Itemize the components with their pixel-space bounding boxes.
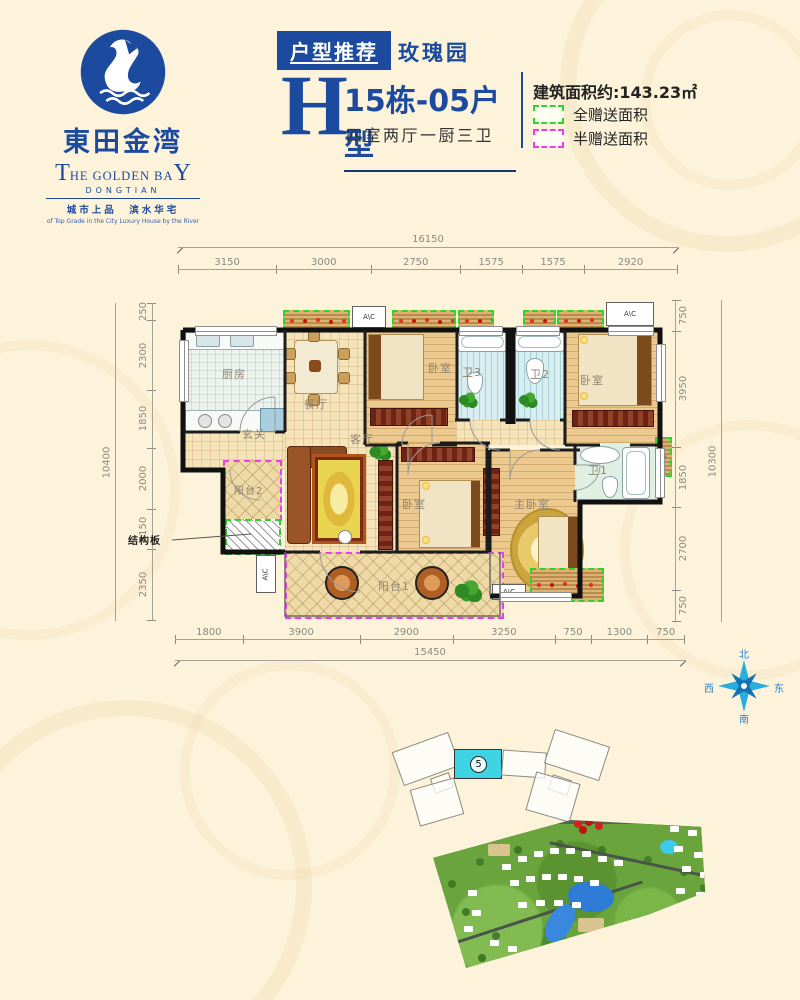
masterplan-buildings [502, 864, 511, 870]
balcony2-label: 阳台2 [234, 482, 263, 497]
brand-name-english: THE GOLDEN BAY [38, 161, 208, 185]
header-divider [521, 72, 523, 148]
brand-tagline-cn: 城市上品 滨水华宅 [38, 202, 208, 216]
bath2-label: 卫2 [530, 366, 550, 382]
compass: 北 南 西 东 [704, 646, 784, 726]
compass-north: 北 [739, 646, 749, 661]
masterplan-pond [660, 840, 678, 854]
legend-half-gift-swatch [533, 129, 564, 148]
entry-label: 玄关 [242, 426, 266, 442]
unit-subtitle: 四室两厅一厨三卫 [346, 122, 494, 146]
garden-name: 玫瑰园 [398, 37, 470, 67]
building-outline [525, 771, 580, 822]
bath3-label: 卫3 [462, 364, 482, 380]
masterplan-map [428, 820, 798, 992]
brand-subname: DONGTIAN [38, 186, 208, 195]
brand-en-final: Y [174, 160, 191, 186]
bedroom-c-label: 卧室 [402, 496, 426, 512]
brand-en-middle: HE GOLDEN BA [70, 169, 174, 183]
masterplan-trees [448, 880, 456, 888]
masterplan-landscape [432, 824, 794, 988]
brand-logo: 東田金湾 THE GOLDEN BAY DONGTIAN 城市上品 滨水华宅 o… [38, 28, 208, 225]
bath1-label: 卫1 [588, 462, 608, 478]
masterplan-plaza [578, 918, 604, 932]
masterplan-plaza [488, 844, 510, 856]
legend-full-gift-swatch [533, 105, 564, 124]
built-area: 建筑面积约:143.23㎡ [533, 79, 697, 103]
legend-full-gift-label: 全赠送面积 [573, 104, 648, 125]
masterplan-red-trees [574, 820, 582, 828]
logo-divider [46, 198, 200, 199]
window [608, 326, 654, 336]
master-label: 主卧室 [514, 496, 550, 512]
brand-tagline-en: of Top Grade in the City Luxury House by… [38, 218, 208, 225]
unit-letter: H [281, 62, 348, 148]
building-number: 5 [470, 756, 487, 773]
legend-full-gift: 全赠送面积 [533, 104, 648, 125]
building-outline [410, 777, 465, 826]
compass-east: 东 [774, 680, 784, 695]
window [500, 592, 572, 602]
window [655, 448, 665, 498]
brand-en-initial: T [55, 160, 70, 186]
kitchen-label: 厨房 [222, 366, 246, 382]
floorplan: A\C A\C A\C A\C 厨房 餐厅 玄关 客厅 卧室 卫3 卫2 卧室 … [110, 240, 760, 690]
site-plan: 5 [388, 725, 800, 997]
swan-logo-icon [79, 28, 167, 116]
living-label: 客厅 [350, 431, 374, 447]
legend-half-gift-label: 半赠送面积 [573, 128, 648, 149]
window [179, 340, 189, 402]
window [195, 326, 277, 336]
window [516, 326, 560, 336]
dining-label: 餐厅 [304, 396, 328, 412]
window [656, 344, 666, 402]
compass-west: 西 [704, 680, 714, 695]
ornament-swirl [180, 660, 400, 880]
window [459, 326, 503, 336]
brand-name-chinese: 東田金湾 [38, 120, 208, 159]
bedroom-a-label: 卧室 [428, 360, 452, 376]
balcony1-label: 阳台1 [378, 578, 410, 594]
compass-south: 南 [739, 711, 749, 726]
compass-center [739, 681, 749, 691]
legend-half-gift: 半赠送面积 [533, 128, 648, 149]
highlighted-building-5: 5 [454, 749, 502, 779]
flyer-page: 東田金湾 THE GOLDEN BAY DONGTIAN 城市上品 滨水华宅 o… [0, 0, 800, 1000]
bedroom-b-label: 卧室 [580, 372, 604, 388]
slab-label: 结构板 [128, 532, 161, 547]
building-outline [544, 729, 610, 781]
masterplan-lake [568, 882, 614, 912]
